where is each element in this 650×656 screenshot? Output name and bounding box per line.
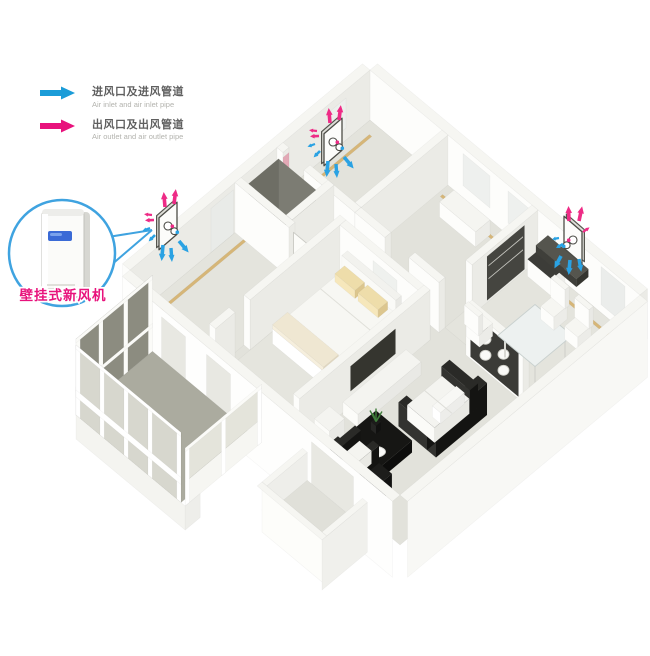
- legend-label-zh: 出风口及出风管道: [92, 119, 184, 132]
- wall: [244, 295, 250, 350]
- device-top-cap: [42, 209, 84, 216]
- mullion: [222, 414, 226, 476]
- duct-dot-outlet: [336, 140, 340, 144]
- mullion: [148, 275, 152, 355]
- air-outlet-arrow-shape: [40, 119, 75, 132]
- page: { "legend": { "items": [ {"id":"air-inle…: [0, 0, 650, 656]
- chair-back: [565, 287, 569, 310]
- air-arrow: [144, 212, 152, 217]
- legend-item-air-outlet: 出风口及出风管道 Air outlet and air outlet pipe: [40, 119, 184, 142]
- device-body: [42, 210, 84, 297]
- wall: [439, 278, 445, 333]
- mullion: [258, 384, 262, 446]
- mullion: [177, 429, 181, 503]
- legend-label-zh: 进风口及进风管道: [92, 86, 184, 99]
- chair-back: [589, 307, 593, 330]
- air-arrow: [160, 192, 168, 208]
- w极ine-rack-circle: [498, 365, 509, 375]
- mullion: [185, 445, 189, 507]
- device-display-shine: [50, 233, 62, 236]
- legend-texts: 进风口及进风管道 Air inlet and air inlet pipe: [92, 86, 184, 109]
- device-highlight: [42, 214, 48, 294]
- wine-rack-circle: [498, 349, 509, 359]
- mullion: [148, 405, 152, 479]
- legend-item-air-inlet: 进风口及进风管道 Air inlet and air inlet pipe: [40, 86, 184, 109]
- air-inlet-arrow-icon: [40, 86, 76, 100]
- mullion: [76, 345, 80, 419]
- air-arrow: [145, 218, 154, 223]
- chair-back: [479, 314, 483, 337]
- mullion: [100, 365, 104, 439]
- duct-dot-outlet: [567, 238, 571, 242]
- mullion: [124, 296, 128, 376]
- legend-texts: 出风口及出风管道 Air outlet and air outlet pipe: [92, 119, 184, 142]
- duct-dot-inlet: [176, 230, 180, 234]
- callout-label: 壁挂式新风机: [20, 287, 107, 303]
- legend: 进风口及进风管道 Air inlet and air inlet pipe 出风…: [40, 86, 184, 151]
- duct-dot-outlet: [171, 224, 175, 228]
- air-inlet-arrow-shape: [40, 87, 75, 100]
- wine-rack-circle: [480, 350, 491, 360]
- mullion: [124, 385, 128, 459]
- air-arrow: [576, 206, 586, 222]
- air-outlet-arrow-icon: [40, 119, 76, 133]
- fresh-air-unit-image: [42, 209, 90, 298]
- device-vent: [47, 284, 75, 286]
- legend-label-en: Air inlet and air inlet pipe: [92, 100, 184, 109]
- duct-dot-inlet: [341, 146, 345, 150]
- legend-label-en: Air outlet and air outlet pipe: [92, 132, 184, 141]
